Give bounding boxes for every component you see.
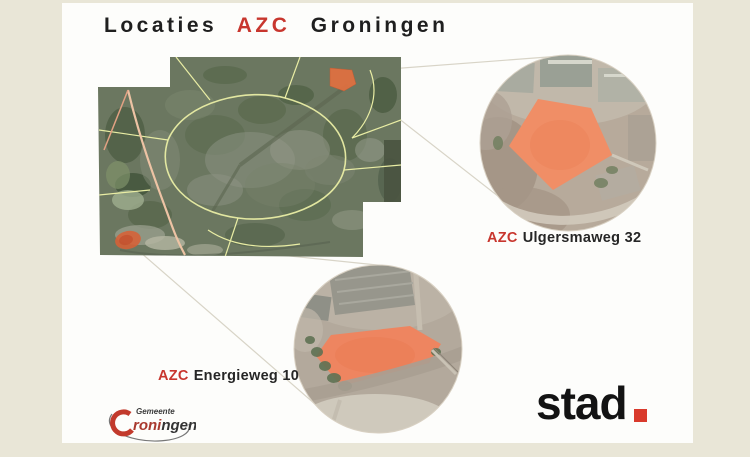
callout-circle-energieweg (287, 250, 465, 446)
label-location-name: Energieweg 10 (194, 368, 299, 384)
page-title: Locaties AZC Groningen (104, 14, 584, 38)
callout-circle-ulgersmaweg (458, 35, 662, 243)
logo-name-red: roni (133, 417, 162, 434)
label-azc-prefix: AZC (487, 230, 518, 246)
title-word-locaties: Locaties (104, 14, 217, 37)
connector-line (132, 245, 323, 411)
g-swoosh-icon (113, 412, 132, 434)
city-map-satellite (95, 55, 405, 260)
svg-text:Gemeente: Gemeente (136, 407, 175, 416)
stad-logo-text: stad (536, 383, 627, 423)
title-word-groningen: Groningen (311, 14, 449, 37)
location-label-energieweg: AZCEnergieweg 10 (158, 368, 299, 384)
gemeente-groningen-logo: Gemeente roningen (96, 392, 196, 444)
svg-text:roningen: roningen (133, 417, 196, 434)
label-azc-prefix: AZC (158, 368, 189, 384)
logo-subtitle: Gemeente (136, 407, 175, 416)
location-label-ulgersmaweg: AZCUlgersmaweg 32 (487, 230, 641, 246)
label-location-name: Ulgersmaweg 32 (523, 230, 642, 246)
stad-logo: stad (536, 383, 647, 423)
title-word-azc: AZC (237, 14, 291, 37)
logo-name-dark: ngen (161, 417, 196, 434)
stad-logo-red-square-icon (634, 409, 647, 422)
